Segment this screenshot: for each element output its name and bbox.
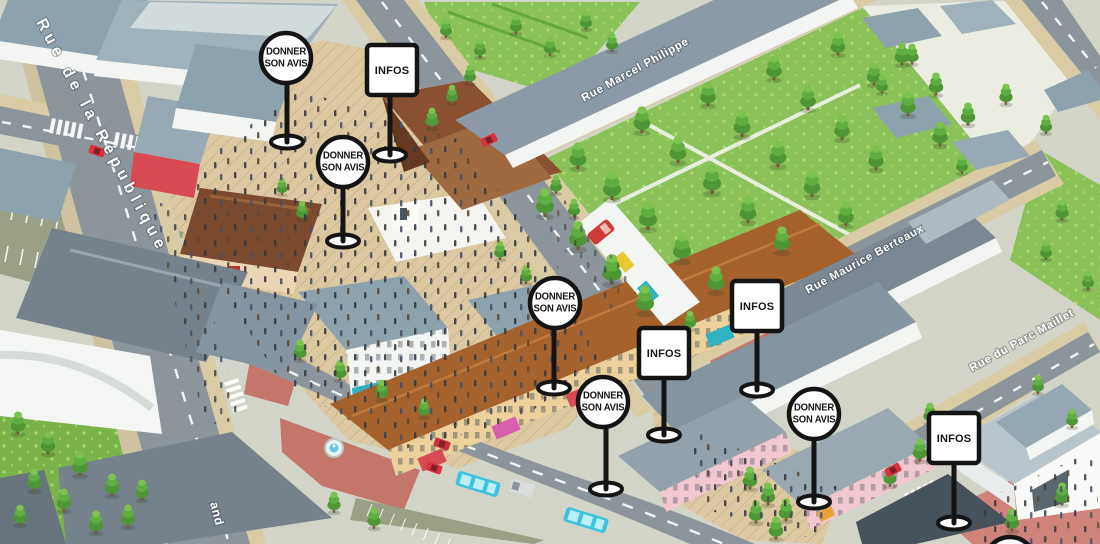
svg-text:INFOS: INFOS — [740, 301, 775, 313]
svg-text:INFOS: INFOS — [375, 65, 410, 77]
fountain — [325, 439, 343, 457]
svg-text:SON AVIS: SON AVIS — [265, 58, 308, 69]
svg-text:SON AVIS: SON AVIS — [534, 303, 577, 314]
svg-text:INFOS: INFOS — [937, 433, 972, 445]
svg-text:DONNER: DONNER — [266, 46, 306, 57]
svg-text:DONNER: DONNER — [794, 402, 834, 413]
svg-text:DONNER: DONNER — [323, 150, 363, 161]
svg-text:INFOS: INFOS — [647, 348, 682, 360]
svg-text:DONNER: DONNER — [583, 390, 623, 401]
svg-text:SON AVIS: SON AVIS — [322, 162, 365, 173]
svg-text:SON AVIS: SON AVIS — [582, 402, 625, 413]
svg-text:SON AVIS: SON AVIS — [793, 414, 836, 425]
illustrated-map: Rue de la République Rue Marcel Philippe… — [0, 0, 1100, 544]
svg-text:DONNER: DONNER — [535, 291, 575, 302]
